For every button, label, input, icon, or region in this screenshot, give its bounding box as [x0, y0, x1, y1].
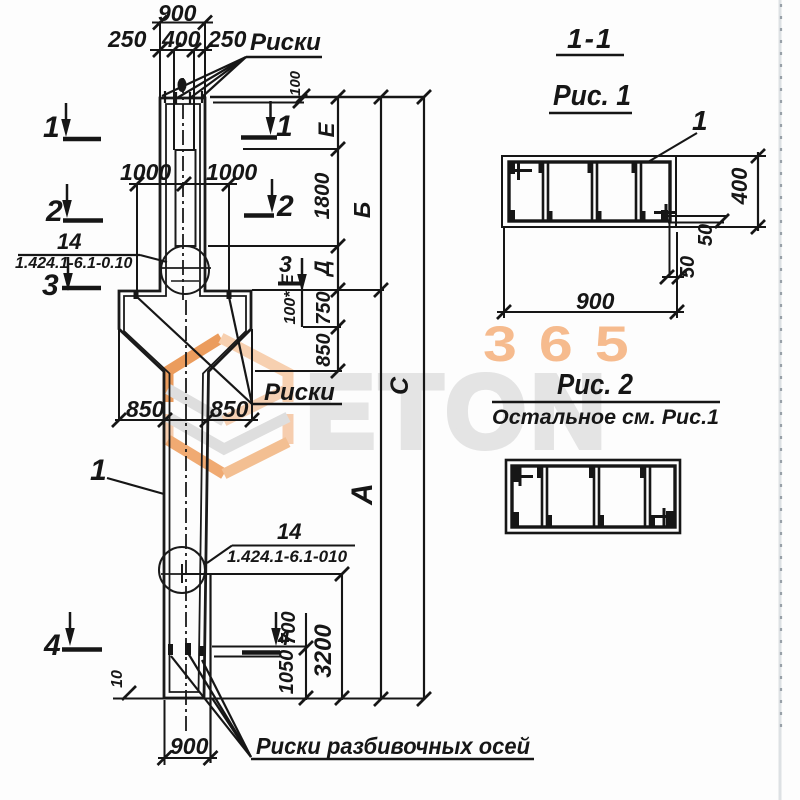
svg-text:100*: 100* — [282, 291, 299, 325]
svg-text:Риски разбивочных осей: Риски разбивочных осей — [256, 733, 530, 759]
svg-text:900: 900 — [170, 733, 209, 759]
svg-text:1-1: 1-1 — [567, 23, 613, 54]
svg-text:Риски: Риски — [264, 379, 335, 406]
svg-text:250: 250 — [207, 26, 247, 52]
svg-text:Остальное см. Рис.1: Остальное см. Рис.1 — [492, 406, 719, 429]
svg-text:1000: 1000 — [120, 159, 171, 185]
svg-text:1.424.1-6.1-010: 1.424.1-6.1-010 — [227, 547, 348, 566]
svg-text:50: 50 — [677, 256, 699, 278]
svg-text:4: 4 — [43, 629, 61, 662]
svg-text:3200: 3200 — [310, 624, 337, 678]
svg-text:3: 3 — [42, 269, 59, 302]
svg-text:100: 100 — [287, 70, 304, 96]
svg-text:2: 2 — [45, 195, 63, 228]
svg-text:1.424.1-6.1-0.10: 1.424.1-6.1-0.10 — [15, 255, 133, 272]
svg-text:14: 14 — [57, 229, 81, 254]
svg-text:Риски: Риски — [250, 29, 321, 56]
svg-text:1800: 1800 — [311, 172, 334, 219]
svg-text:850: 850 — [210, 396, 249, 422]
svg-text:850: 850 — [126, 396, 165, 422]
svg-text:700: 700 — [278, 611, 300, 644]
svg-text:Е: Е — [278, 274, 297, 286]
svg-text:850: 850 — [313, 333, 335, 366]
svg-text:А: А — [346, 483, 379, 506]
svg-text:10: 10 — [109, 670, 126, 688]
svg-text:Е: Е — [314, 121, 339, 137]
svg-text:С: С — [386, 376, 414, 395]
svg-text:250: 250 — [107, 26, 147, 52]
svg-text:1: 1 — [90, 454, 107, 487]
svg-text:400: 400 — [727, 167, 752, 205]
svg-text:3: 3 — [279, 251, 292, 277]
svg-text:1: 1 — [276, 110, 293, 143]
svg-text:Рис. 2: Рис. 2 — [557, 369, 633, 401]
svg-text:1: 1 — [692, 105, 708, 136]
svg-text:900: 900 — [576, 288, 615, 314]
svg-text:Рис. 1: Рис. 1 — [553, 80, 631, 112]
svg-text:Б: Б — [349, 202, 375, 218]
svg-text:Д: Д — [311, 260, 334, 277]
svg-text:50: 50 — [695, 224, 717, 246]
svg-text:1: 1 — [43, 111, 60, 144]
svg-text:1050: 1050 — [276, 650, 298, 695]
svg-text:14: 14 — [277, 519, 301, 544]
svg-text:2: 2 — [276, 190, 294, 223]
